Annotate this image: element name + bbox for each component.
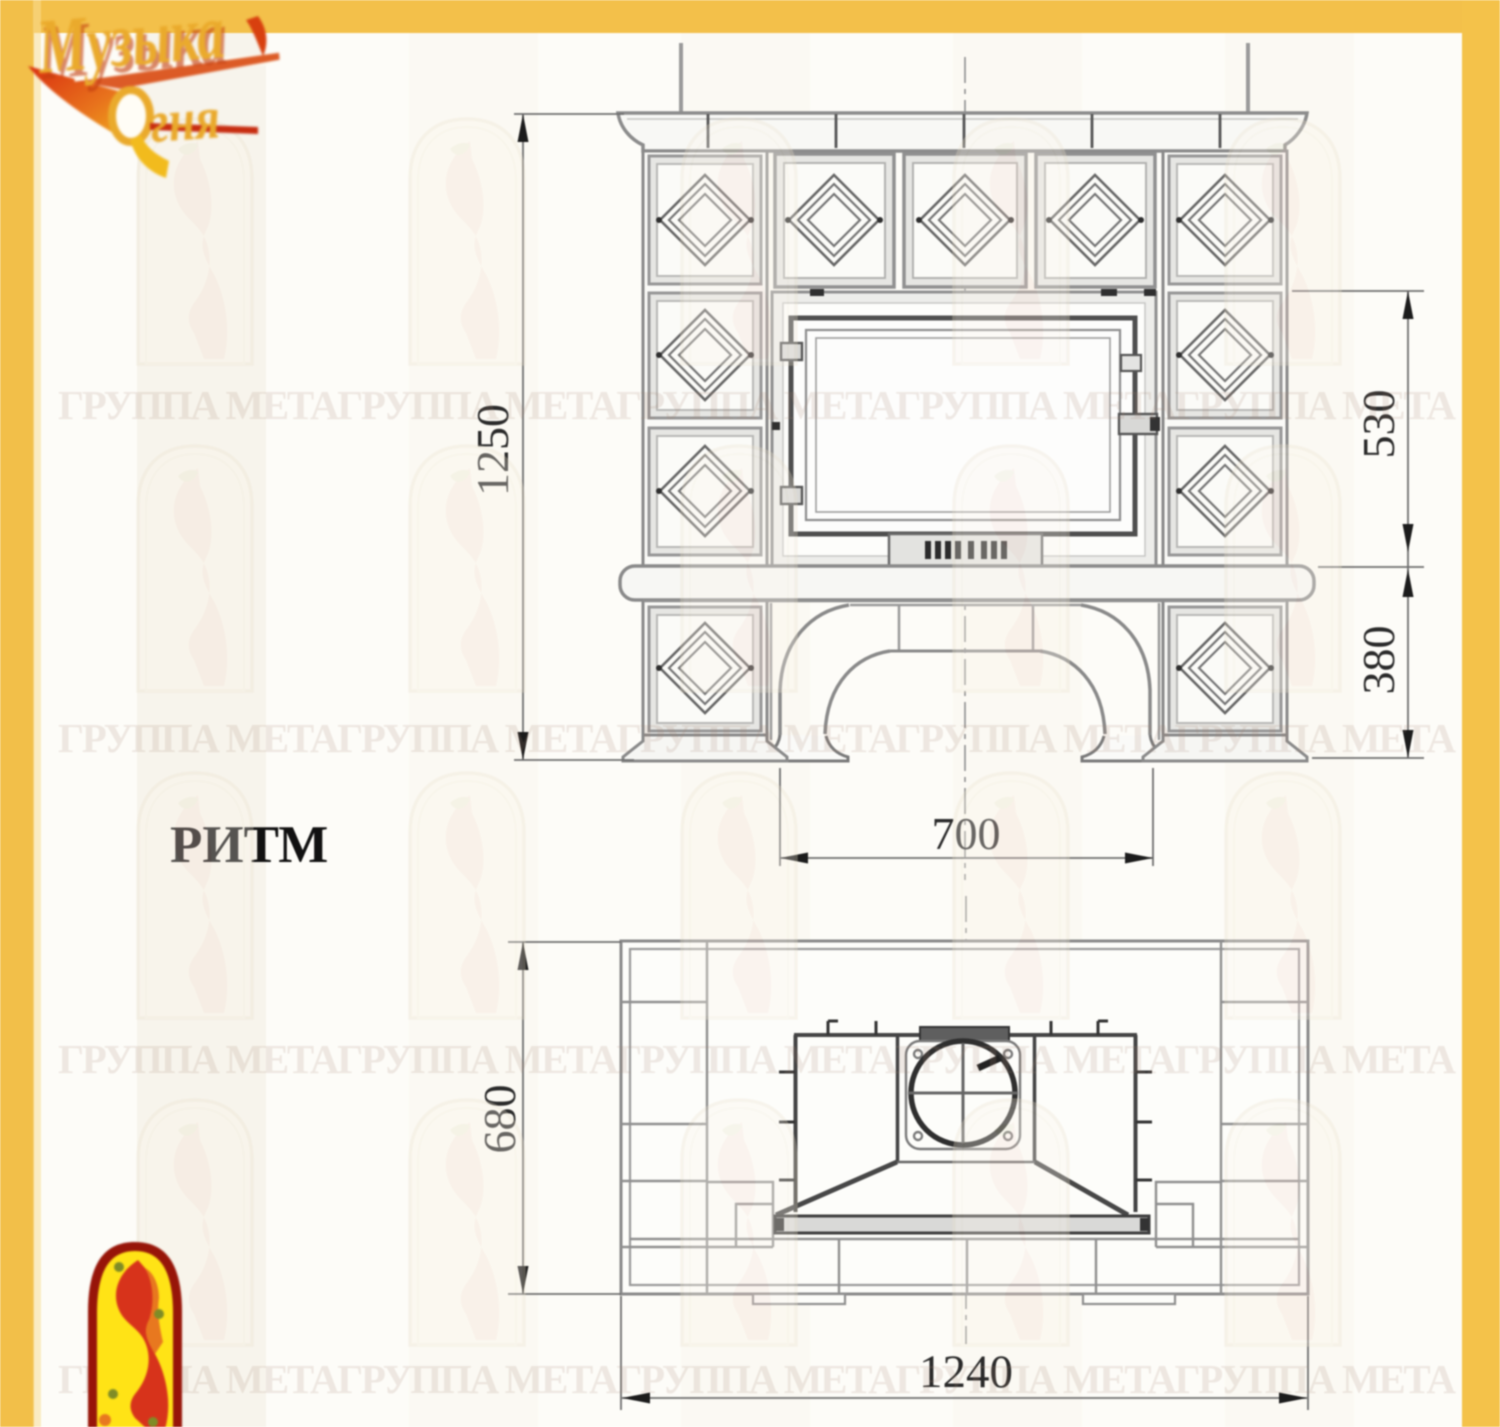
svg-text:ГРУППА МЕТАГРУППА МЕТАГРУППА М: ГРУППА МЕТАГРУППА МЕТАГРУППА МЕТАГРУППА … <box>58 1036 1458 1082</box>
svg-text:380: 380 <box>1353 626 1404 695</box>
svg-text:ГРУППА МЕТАГРУППА МЕТАГРУППА М: ГРУППА МЕТАГРУППА МЕТАГРУППА МЕТАГРУППА … <box>58 715 1458 761</box>
svg-text:ГРУППА МЕТАГРУППА МЕТАГРУППА М: ГРУППА МЕТАГРУППА МЕТАГРУППА МЕТАГРУППА … <box>58 382 1458 428</box>
svg-text:гня: гня <box>148 84 222 155</box>
svg-text:ГРУППА МЕТАГРУППА МЕТАГРУППА М: ГРУППА МЕТАГРУППА МЕТАГРУППА МЕТАГРУППА … <box>58 1356 1458 1402</box>
